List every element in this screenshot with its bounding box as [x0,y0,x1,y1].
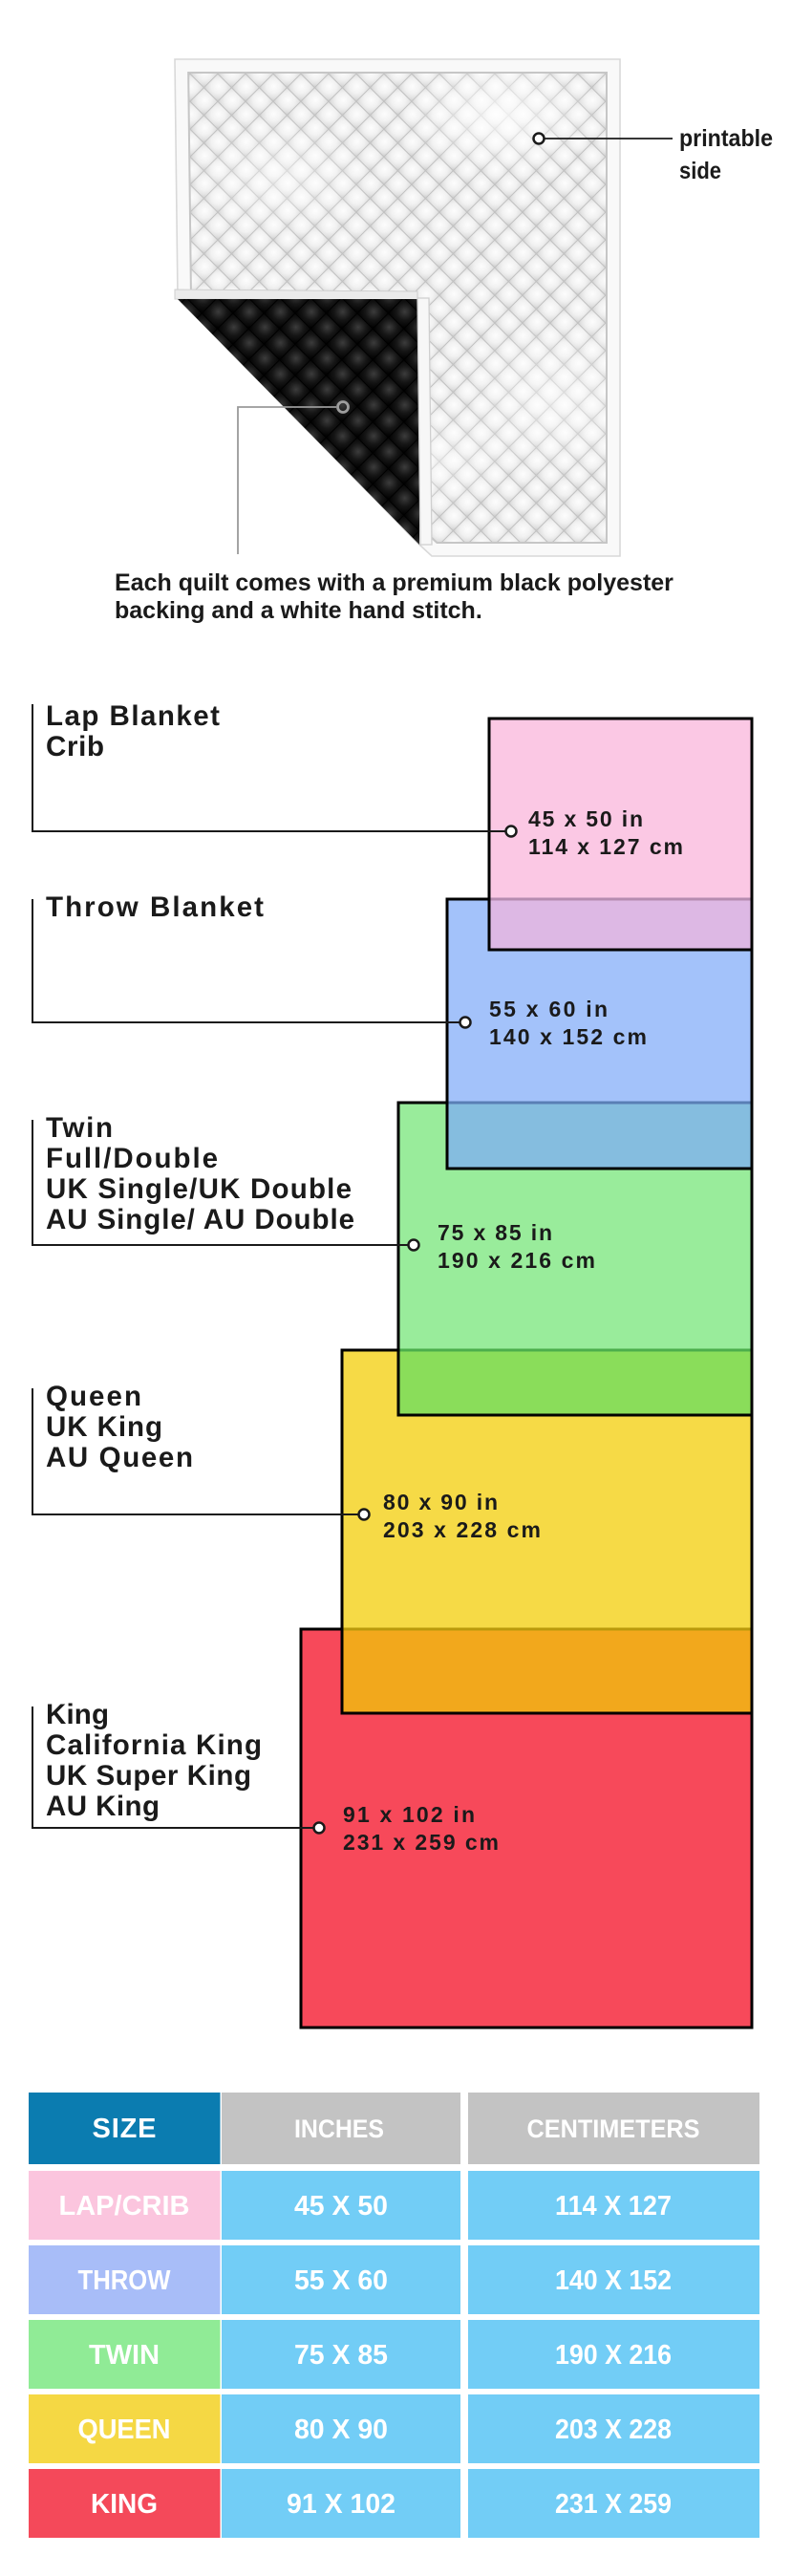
svg-text:CENTIMETERS: CENTIMETERS [527,2114,700,2143]
svg-text:KING: KING [91,2489,158,2520]
svg-text:INCHES: INCHES [294,2114,384,2143]
svg-text:91 X 102: 91 X 102 [287,2489,395,2520]
svg-text:backing and a white hand stitc: backing and a white hand stitch. [115,597,482,624]
svg-text:140 X 152: 140 X 152 [555,2265,672,2296]
svg-text:UK Super King: UK Super King [46,1760,251,1792]
svg-text:THROW: THROW [78,2265,172,2296]
svg-text:LAP/CRIB: LAP/CRIB [59,2191,190,2222]
svg-text:SIZE: SIZE [93,2114,157,2144]
svg-text:Full/Double: Full/Double [46,1143,218,1174]
svg-text:TWIN: TWIN [89,2340,160,2371]
svg-text:140 x 152 cm: 140 x 152 cm [489,1024,647,1049]
svg-text:190 X 216: 190 X 216 [555,2340,672,2371]
svg-text:231 X 259: 231 X 259 [555,2489,672,2520]
svg-text:Queen: Queen [46,1381,141,1412]
svg-text:Twin: Twin [46,1112,113,1144]
svg-text:Throw Blanket: Throw Blanket [46,891,264,923]
svg-text:203 x 228 cm: 203 x 228 cm [383,1517,541,1542]
svg-text:114 x 127 cm: 114 x 127 cm [528,834,683,859]
svg-text:114 X 127: 114 X 127 [555,2191,672,2222]
svg-text:King: King [46,1699,109,1730]
svg-text:QUEEN: QUEEN [78,2415,171,2445]
svg-text:AU Single/ AU Double: AU Single/ AU Double [46,1204,354,1235]
svg-text:UK King: UK King [46,1411,162,1443]
svg-text:231 x 259 cm: 231 x 259 cm [343,1830,499,1855]
svg-text:80 x 90 in: 80 x 90 in [383,1490,498,1514]
svg-text:91 x 102 in: 91 x 102 in [343,1802,475,1827]
svg-text:45 X 50: 45 X 50 [294,2191,388,2222]
svg-text:75 x 85 in: 75 x 85 in [438,1220,552,1245]
svg-text:Each quilt comes with a premiu: Each quilt comes with a premium black po… [115,569,673,596]
svg-text:AU King: AU King [46,1791,160,1822]
svg-text:AU Queen: AU Queen [46,1442,193,1473]
svg-text:UK Single/UK Double: UK Single/UK Double [46,1173,352,1205]
svg-text:80 X 90: 80 X 90 [294,2415,388,2445]
svg-text:45 x 50 in: 45 x 50 in [528,806,643,831]
svg-text:190 x 216 cm: 190 x 216 cm [438,1248,595,1273]
svg-text:55 x 60 in: 55 x 60 in [489,997,608,1021]
svg-text:side: side [679,158,721,184]
svg-text:California King: California King [46,1729,262,1761]
svg-text:75 X 85: 75 X 85 [294,2340,388,2371]
svg-text:203 X 228: 203 X 228 [555,2415,672,2445]
svg-text:55 X 60: 55 X 60 [294,2265,388,2296]
svg-text:Crib: Crib [46,731,104,762]
svg-text:Lap Blanket: Lap Blanket [46,700,220,732]
svg-text:printable: printable [679,125,773,152]
